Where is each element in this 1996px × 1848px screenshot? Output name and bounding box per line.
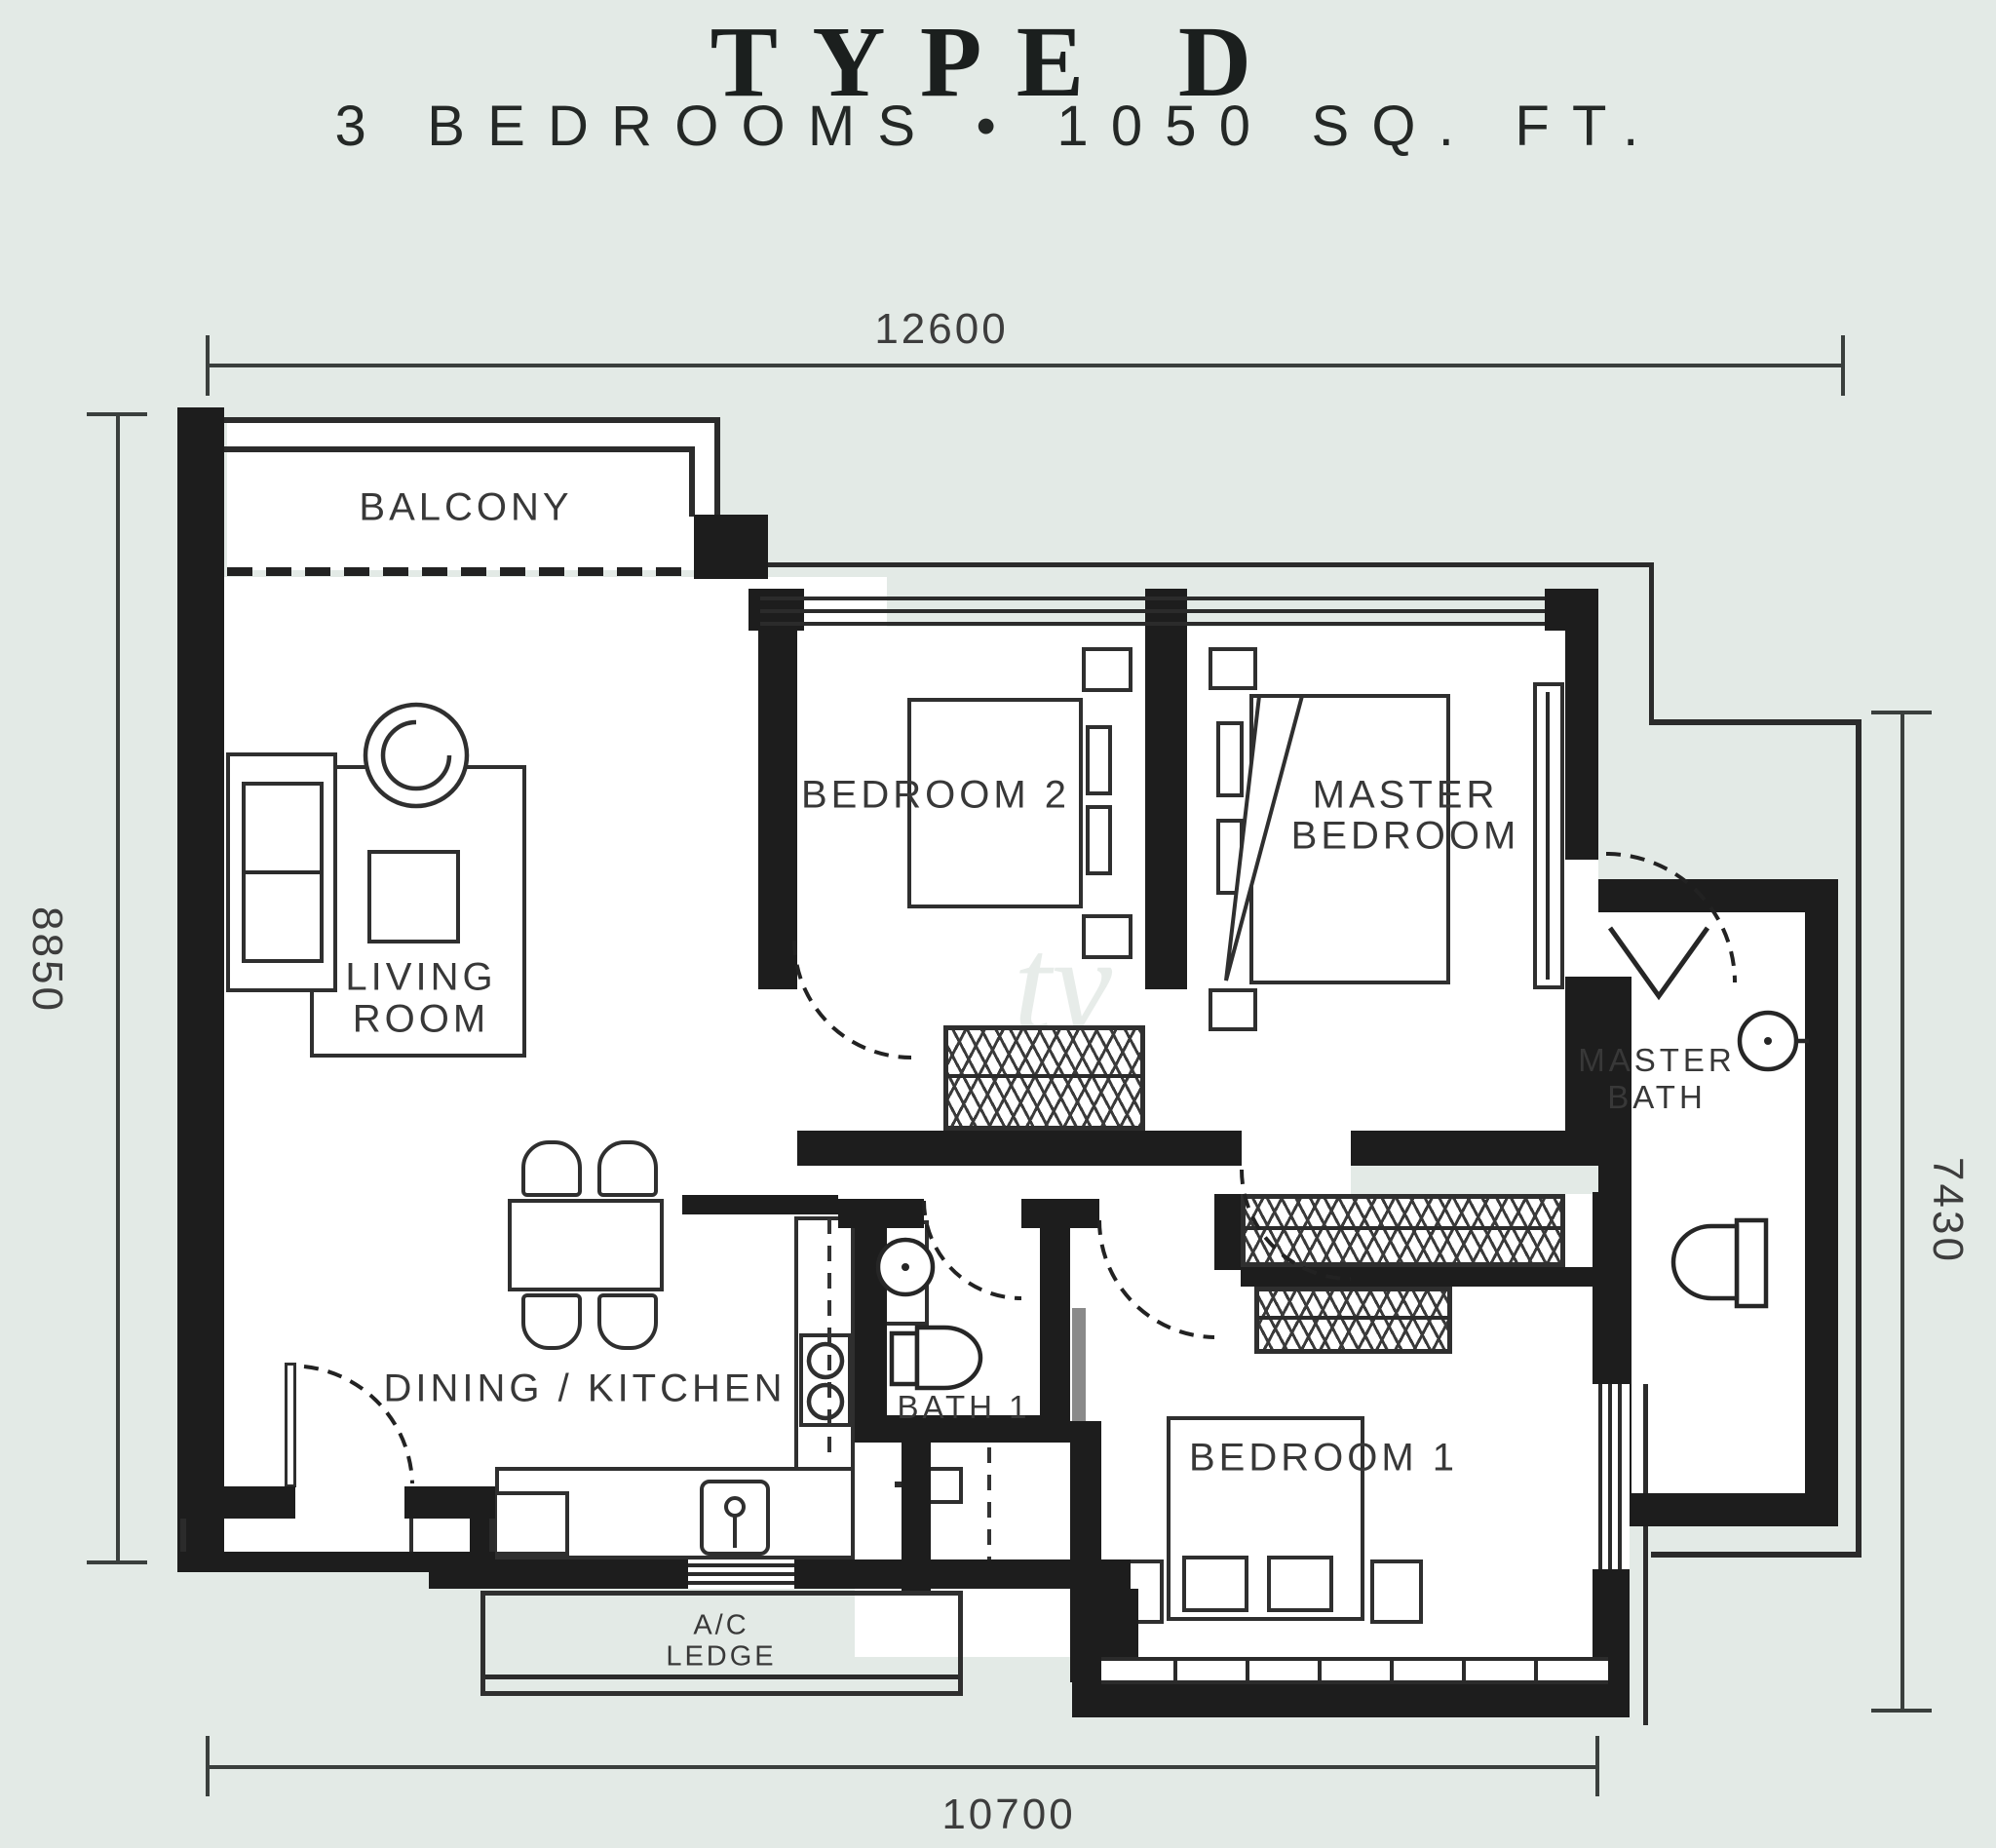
bath1-basin-drain bbox=[902, 1263, 909, 1271]
dim-label-right: 7430 bbox=[1923, 1157, 1972, 1264]
label-bath1: BATH 1 bbox=[897, 1389, 1030, 1426]
label-master-1: MASTER bbox=[1313, 774, 1499, 818]
master-door-arc bbox=[1242, 1170, 1351, 1279]
dim-tick bbox=[87, 412, 147, 416]
label-living-1: LIVING bbox=[345, 956, 496, 1000]
dim-tick bbox=[87, 1560, 147, 1564]
dim-tick bbox=[206, 1736, 210, 1796]
label-balcony: BALCONY bbox=[359, 486, 572, 530]
masterbath-door-arc bbox=[1606, 854, 1735, 982]
label-bedroom2: BEDROOM 2 bbox=[801, 774, 1070, 818]
bath1-toilet-tank bbox=[892, 1333, 917, 1384]
dim-line-left bbox=[116, 414, 120, 1564]
fixtures-layer bbox=[0, 0, 1996, 1848]
label-ac-2: LEDGE bbox=[666, 1641, 776, 1674]
masterbath-basin-drain bbox=[1764, 1037, 1772, 1045]
label-masterbath-1: MASTER bbox=[1578, 1042, 1736, 1079]
dim-tick bbox=[1595, 1736, 1599, 1796]
label-bedroom1: BEDROOM 1 bbox=[1189, 1437, 1458, 1481]
label-living-2: ROOM bbox=[353, 998, 489, 1042]
bedroom2-door-arc bbox=[794, 941, 911, 1058]
label-masterbath-2: BATH bbox=[1607, 1079, 1707, 1116]
label-dining-kitchen: DINING / KITCHEN bbox=[384, 1367, 787, 1411]
dim-label-top: 12600 bbox=[874, 305, 1008, 354]
floor-plan-canvas: TYPE D 3 BEDROOMS • 1050 SQ. FT. ty bbox=[0, 0, 1996, 1848]
stove-burner bbox=[809, 1344, 842, 1377]
dim-tick bbox=[1871, 711, 1932, 714]
dim-tick bbox=[1841, 335, 1845, 396]
dim-label-bottom: 10700 bbox=[941, 1790, 1075, 1839]
round-chair bbox=[365, 705, 467, 806]
label-master-2: BEDROOM bbox=[1291, 815, 1520, 859]
label-ac-1: A/C bbox=[693, 1610, 748, 1642]
sink-tap bbox=[726, 1498, 744, 1516]
dim-line-bottom bbox=[208, 1765, 1599, 1769]
dim-line-top bbox=[208, 364, 1845, 367]
dim-tick bbox=[1871, 1709, 1932, 1713]
dim-line-right bbox=[1900, 712, 1904, 1713]
bath1-door-arc bbox=[924, 1201, 1021, 1298]
stove-burner bbox=[809, 1385, 842, 1418]
bath1-toilet-bowl bbox=[917, 1328, 980, 1388]
dim-label-left: 8850 bbox=[22, 906, 71, 1014]
masterbath-toilet-bowl bbox=[1673, 1226, 1737, 1298]
bedroom1-door-arc bbox=[1099, 1220, 1214, 1337]
shower-screen bbox=[1610, 928, 1708, 996]
masterbath-toilet-tank bbox=[1737, 1220, 1766, 1306]
dim-tick bbox=[206, 335, 210, 396]
